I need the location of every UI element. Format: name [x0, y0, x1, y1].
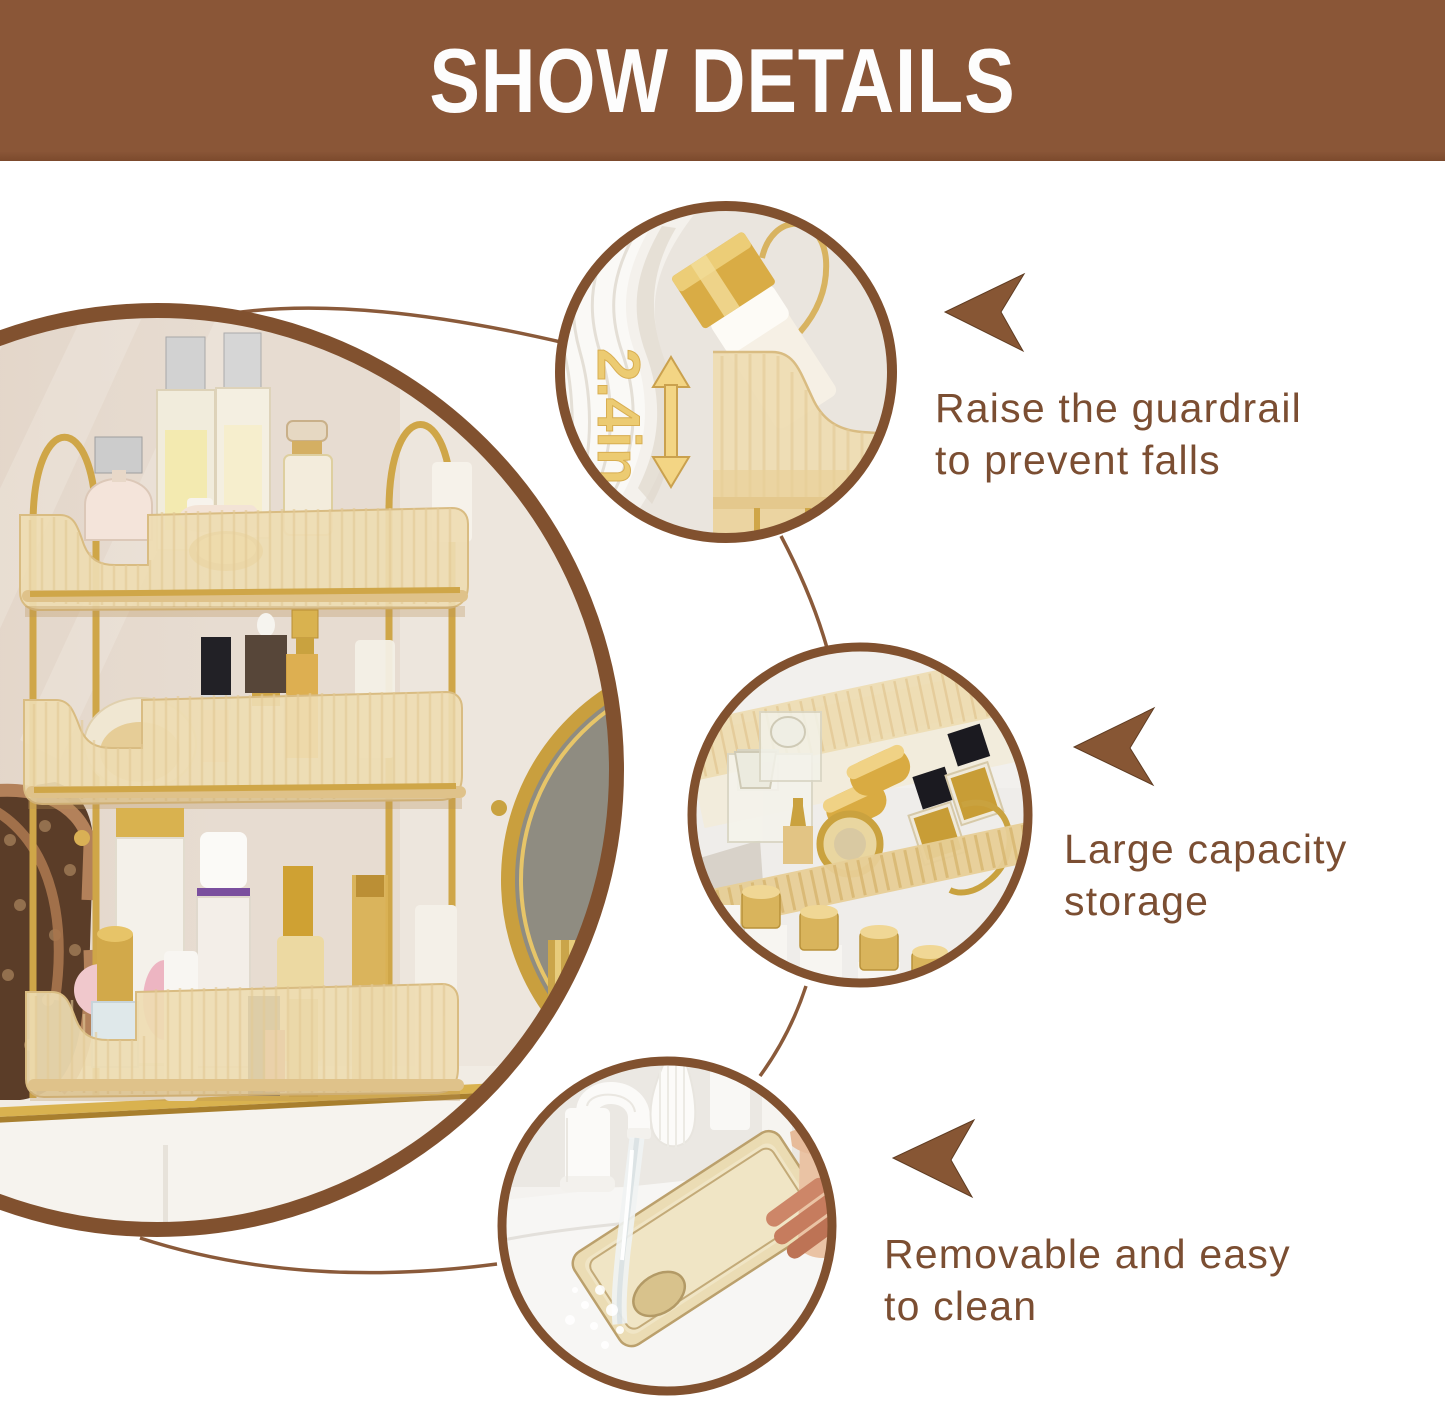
svg-text:2.4in: 2.4in [585, 348, 652, 485]
